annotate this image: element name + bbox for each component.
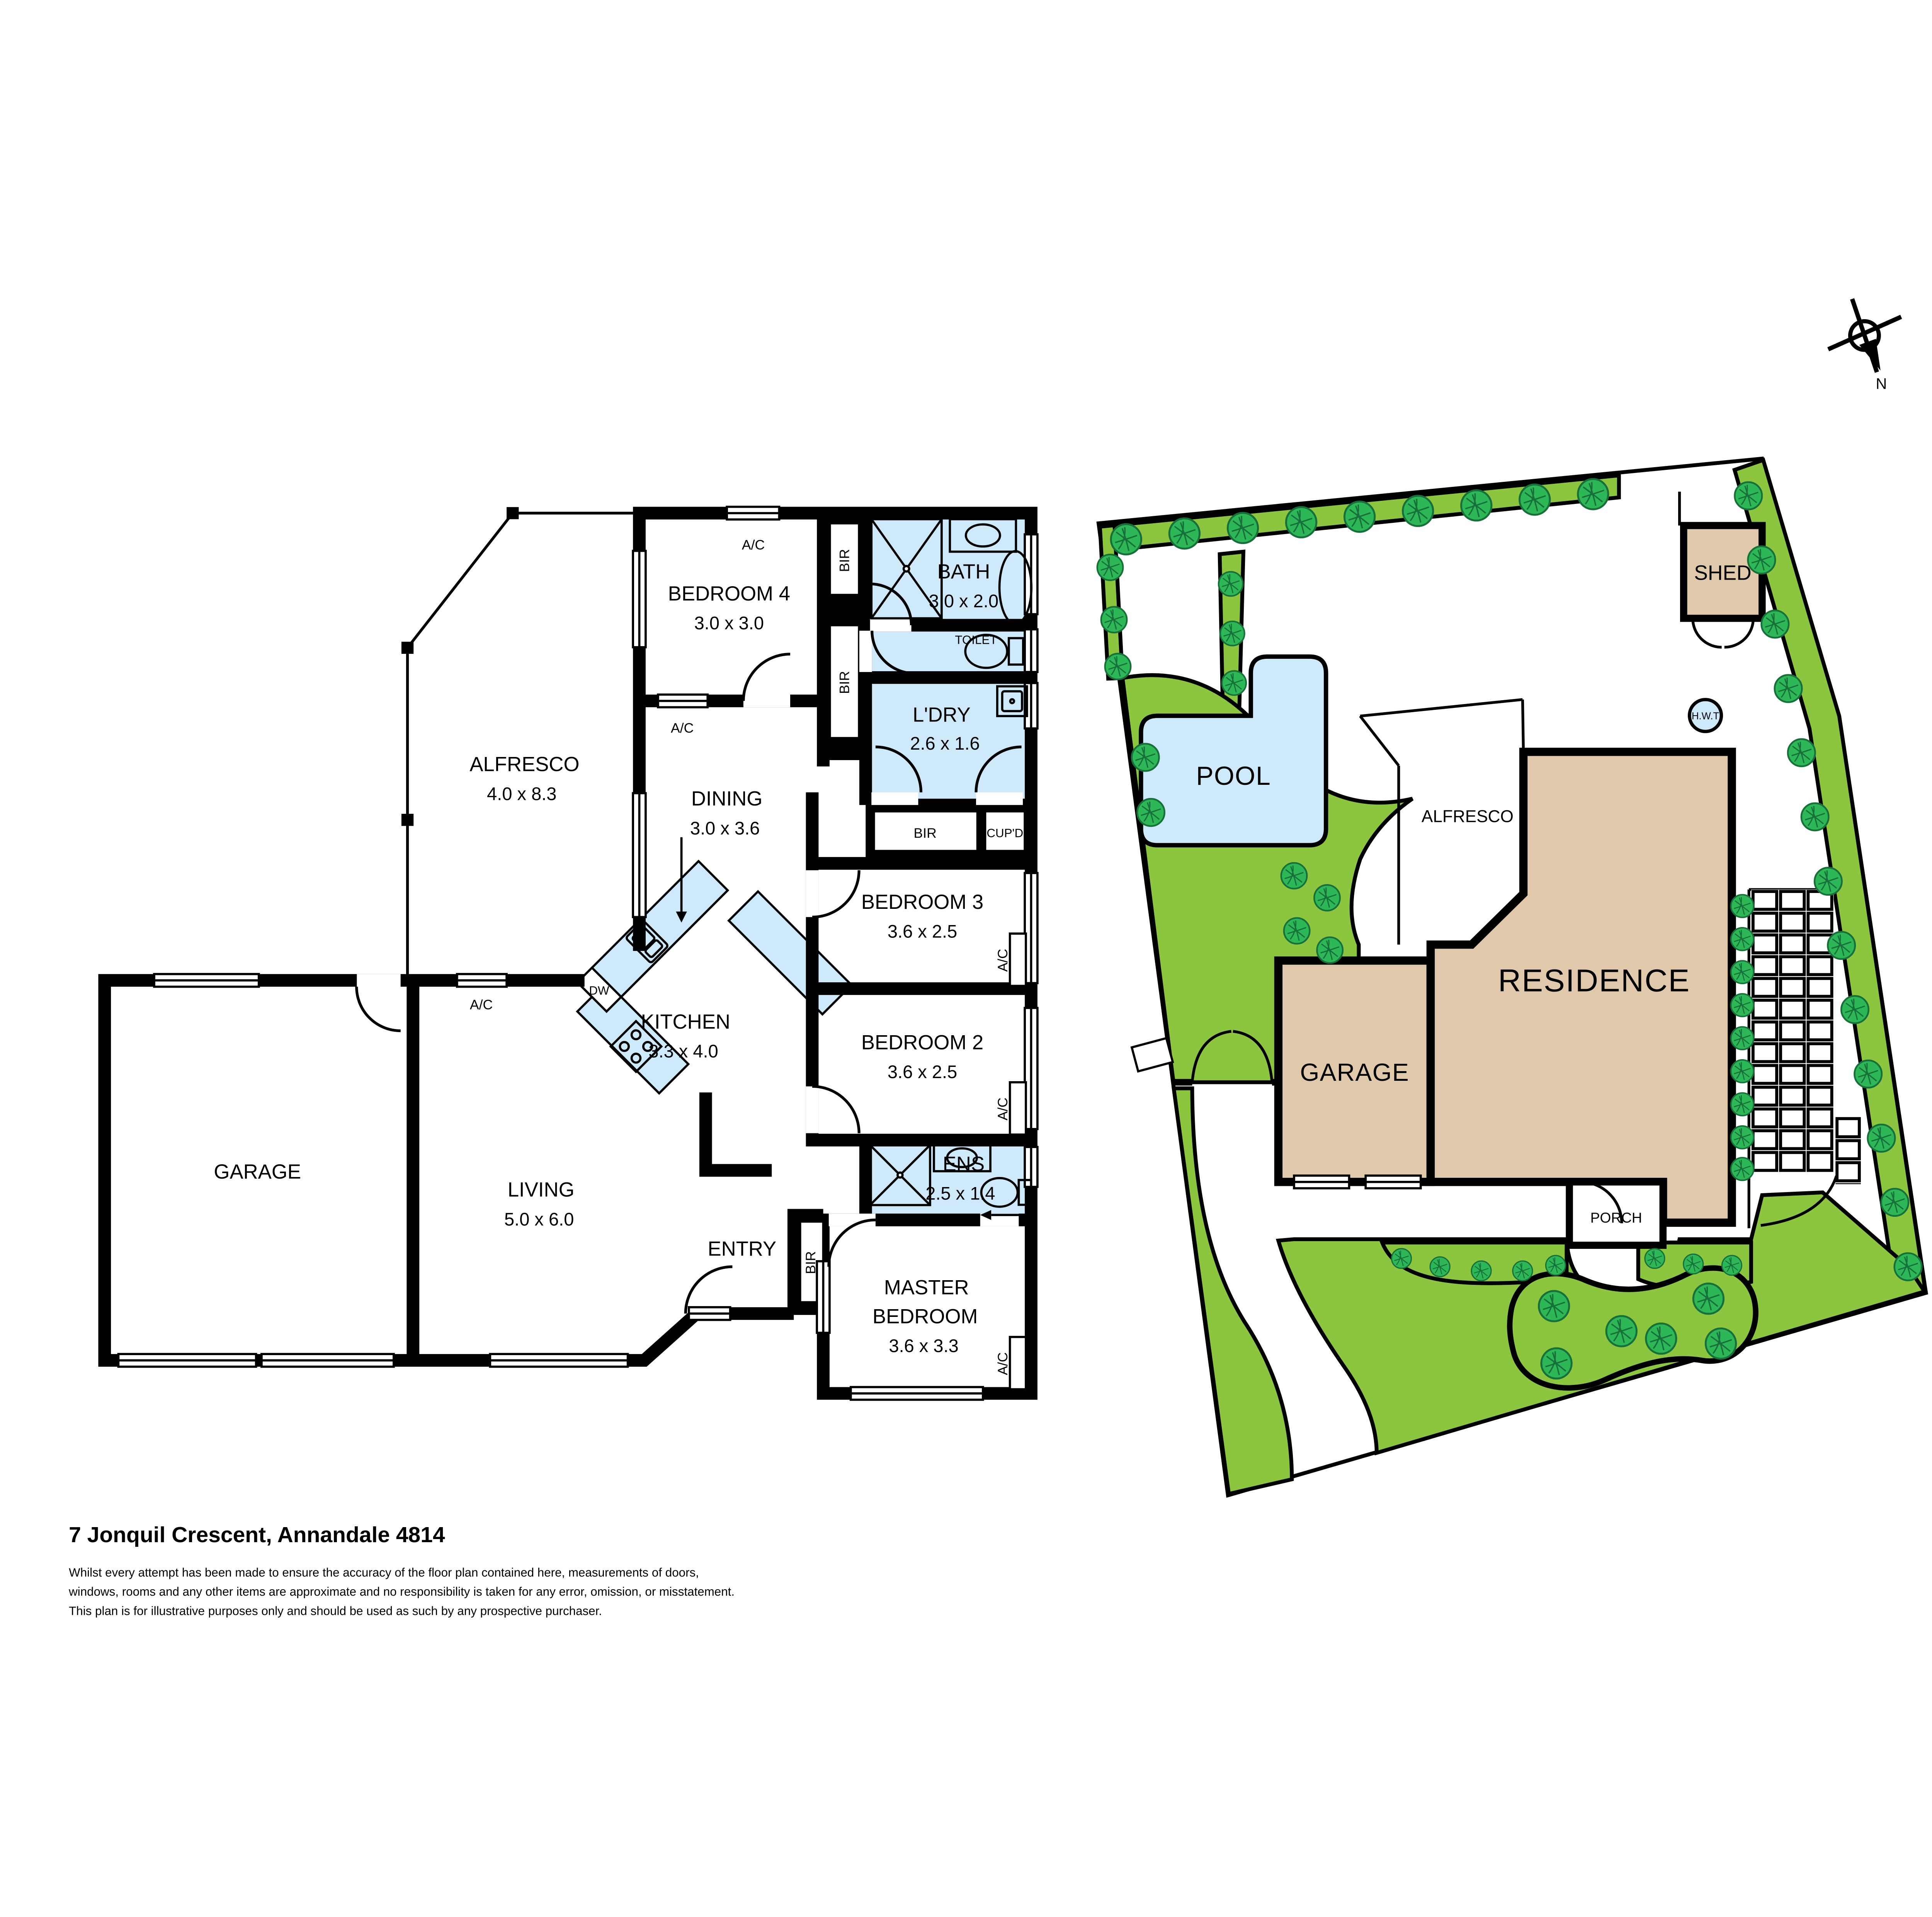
pool-label: POOL — [1196, 762, 1271, 791]
compass: N — [1828, 299, 1901, 393]
bedroom3-dim: 3.6 x 2.5 — [888, 921, 957, 942]
letterbox — [1132, 1038, 1173, 1072]
paving-grid — [1751, 890, 1834, 1172]
ensuite-dim: 2.5 x 1.4 — [925, 1183, 995, 1203]
disclaimer-line-1: Whilst every attempt has been made to en… — [69, 1566, 699, 1579]
garage-label: GARAGE — [214, 1160, 301, 1183]
laundry-label: L'DRY — [913, 703, 971, 726]
paving-grid-small — [1835, 1117, 1861, 1184]
ac-bed3: A/C — [995, 949, 1010, 971]
dining-dim: 3.0 x 3.6 — [690, 818, 760, 838]
site-garage-label: GARAGE — [1300, 1058, 1409, 1086]
dining-label: DINING — [691, 788, 763, 810]
address-title: 7 Jonquil Crescent, Annandale 4814 — [69, 1522, 445, 1547]
hwt-label: H.W.T — [1692, 711, 1719, 722]
bir1-label: BIR — [837, 549, 852, 572]
ac-master: A/C — [995, 1352, 1010, 1375]
porch-label: PORCH — [1590, 1209, 1642, 1226]
ac-unit-bed3 — [1010, 934, 1026, 986]
floorplan-page: ALFRESCO 4.0 x 8.3 BEDROOM 4 3.0 x 3.0 B… — [0, 0, 1932, 1917]
entry-label: ENTRY — [707, 1238, 776, 1260]
site-alfresco-label: ALFRESCO — [1422, 807, 1514, 826]
footer: 7 Jonquil Crescent, Annandale 4814 Whils… — [68, 1522, 735, 1618]
ac-living: A/C — [470, 997, 493, 1012]
bedroom4-dim: 3.0 x 3.0 — [694, 613, 764, 633]
ac-dining: A/C — [671, 720, 694, 736]
north-label: N — [1876, 376, 1887, 393]
ac-bed2: A/C — [995, 1097, 1010, 1120]
bedroom2-dim: 3.6 x 2.5 — [888, 1061, 957, 1082]
ensuite-label: ENS — [943, 1153, 985, 1175]
master-dim: 3.6 x 3.3 — [889, 1335, 958, 1356]
alfresco-boundary — [408, 513, 639, 980]
site-plan: H.W.T POOL SHED ALFRESCO GARAGE RESIDENC… — [1097, 459, 1926, 1495]
bedroom3-label: BEDROOM 3 — [861, 891, 983, 913]
alfresco-label: ALFRESCO — [469, 753, 579, 776]
cupd-label: CUP'D — [986, 827, 1023, 840]
ac-bed4: A/C — [742, 537, 765, 553]
bedroom4-label: BEDROOM 4 — [668, 582, 790, 605]
living-label: LIVING — [508, 1179, 575, 1201]
master-label1: MASTER — [884, 1276, 969, 1299]
bir2-label: BIR — [837, 671, 852, 694]
entry-bir-label: BIR — [803, 1251, 818, 1274]
disclaimer-line-2: windows, rooms and any other items are a… — [68, 1585, 735, 1599]
bath-dim: 3.0 x 2.0 — [929, 591, 998, 611]
residence-label: RESIDENCE — [1498, 963, 1690, 998]
master-label2: BEDROOM — [872, 1305, 978, 1328]
dw-label: DW — [589, 984, 609, 997]
compass-cross — [1828, 299, 1901, 373]
alfresco-dim: 4.0 x 8.3 — [487, 783, 556, 804]
kitchen-dim: 3.3 x 4.0 — [648, 1041, 718, 1061]
bath-label: BATH — [937, 560, 990, 583]
toilet-label: TOILET — [955, 633, 997, 646]
floor-plan: ALFRESCO 4.0 x 8.3 BEDROOM 4 3.0 x 3.0 B… — [105, 507, 1037, 1400]
disclaimer-line-3: This plan is for illustrative purposes o… — [69, 1604, 602, 1618]
ac-unit-master — [1010, 1337, 1026, 1389]
bedroom2-label: BEDROOM 2 — [861, 1031, 983, 1054]
living-dim: 5.0 x 6.0 — [504, 1209, 574, 1229]
kitchen-label: KITCHEN — [641, 1010, 730, 1033]
ac-unit-bed2 — [1010, 1082, 1026, 1135]
laundry-dim: 2.6 x 1.6 — [910, 733, 980, 754]
bir3-label: BIR — [913, 825, 936, 841]
alfresco-posts — [401, 507, 519, 826]
shed-label: SHED — [1694, 561, 1751, 584]
